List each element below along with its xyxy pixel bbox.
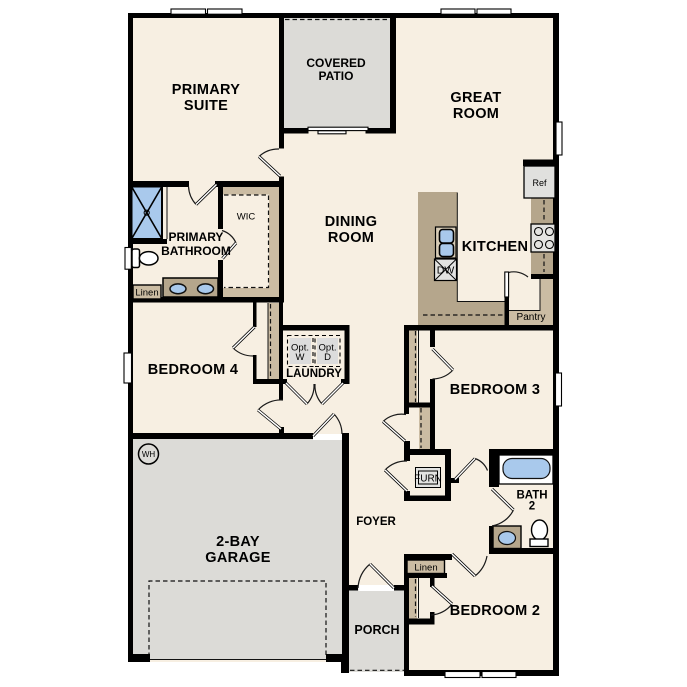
svg-text:GREAT: GREAT <box>450 90 501 106</box>
svg-text:PATIO: PATIO <box>319 69 354 83</box>
svg-text:WH: WH <box>142 450 156 459</box>
svg-text:COVERED: COVERED <box>306 56 366 70</box>
svg-text:BEDROOM 3: BEDROOM 3 <box>450 382 541 398</box>
svg-text:SUITE: SUITE <box>184 98 228 114</box>
svg-text:BEDROOM 2: BEDROOM 2 <box>450 603 541 619</box>
svg-text:PRIMARY: PRIMARY <box>169 230 224 244</box>
svg-text:Linen: Linen <box>414 563 437 574</box>
svg-text:Pantry: Pantry <box>517 312 546 323</box>
svg-text:Linen: Linen <box>135 288 158 299</box>
svg-text:2-BAY: 2-BAY <box>216 534 260 550</box>
svg-text:BATHROOM: BATHROOM <box>161 244 231 258</box>
svg-text:GARAGE: GARAGE <box>205 550 270 566</box>
svg-text:KITCHEN: KITCHEN <box>462 239 529 255</box>
svg-text:PORCH: PORCH <box>354 623 399 637</box>
svg-text:D: D <box>324 352 331 363</box>
svg-text:LAUNDRY: LAUNDRY <box>286 368 342 380</box>
svg-text:ROOM: ROOM <box>453 106 499 122</box>
svg-text:WIC: WIC <box>237 212 256 223</box>
svg-text:2: 2 <box>529 501 535 513</box>
svg-text:FOYER: FOYER <box>356 516 396 528</box>
svg-text:DW: DW <box>437 265 455 277</box>
svg-text:DINING: DINING <box>325 214 378 230</box>
svg-text:ROOM: ROOM <box>328 230 374 246</box>
svg-text:FURN: FURN <box>414 474 442 485</box>
svg-text:W: W <box>296 352 305 363</box>
svg-text:Ref: Ref <box>532 178 547 188</box>
svg-text:PRIMARY: PRIMARY <box>172 82 240 98</box>
svg-text:BEDROOM 4: BEDROOM 4 <box>148 362 239 378</box>
